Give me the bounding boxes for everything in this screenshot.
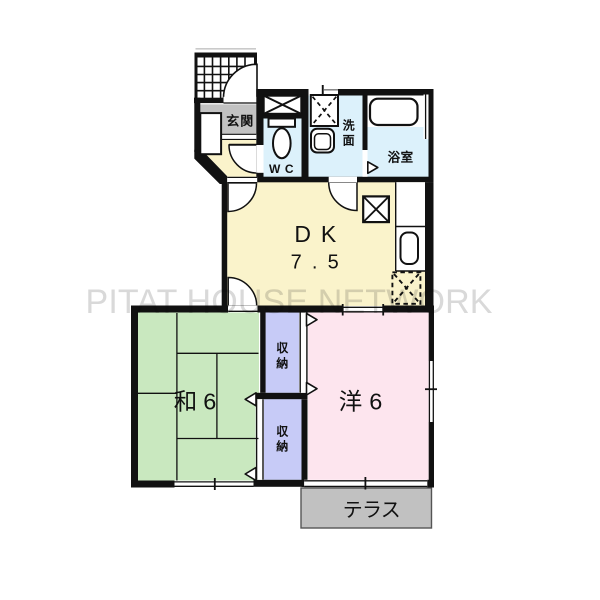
svg-text:和6: 和6 xyxy=(174,388,223,414)
svg-text:洋6: 洋6 xyxy=(339,389,390,415)
svg-text:納: 納 xyxy=(276,439,288,454)
svg-text:収: 収 xyxy=(276,341,289,355)
svg-text:PITAT HOUSE NETWORK: PITAT HOUSE NETWORK xyxy=(86,283,493,321)
svg-text:浴室: 浴室 xyxy=(388,150,414,165)
svg-text:面: 面 xyxy=(343,133,355,147)
svg-text:テラス: テラス xyxy=(343,499,400,521)
svg-text:納: 納 xyxy=(276,355,288,370)
svg-text:収: 収 xyxy=(276,424,289,438)
svg-text:WC: WC xyxy=(269,162,298,176)
svg-text:DK: DK xyxy=(294,221,346,247)
svg-text:7.5: 7.5 xyxy=(291,252,349,274)
svg-text:玄関: 玄関 xyxy=(226,113,254,128)
svg-text:洗: 洗 xyxy=(343,118,355,133)
